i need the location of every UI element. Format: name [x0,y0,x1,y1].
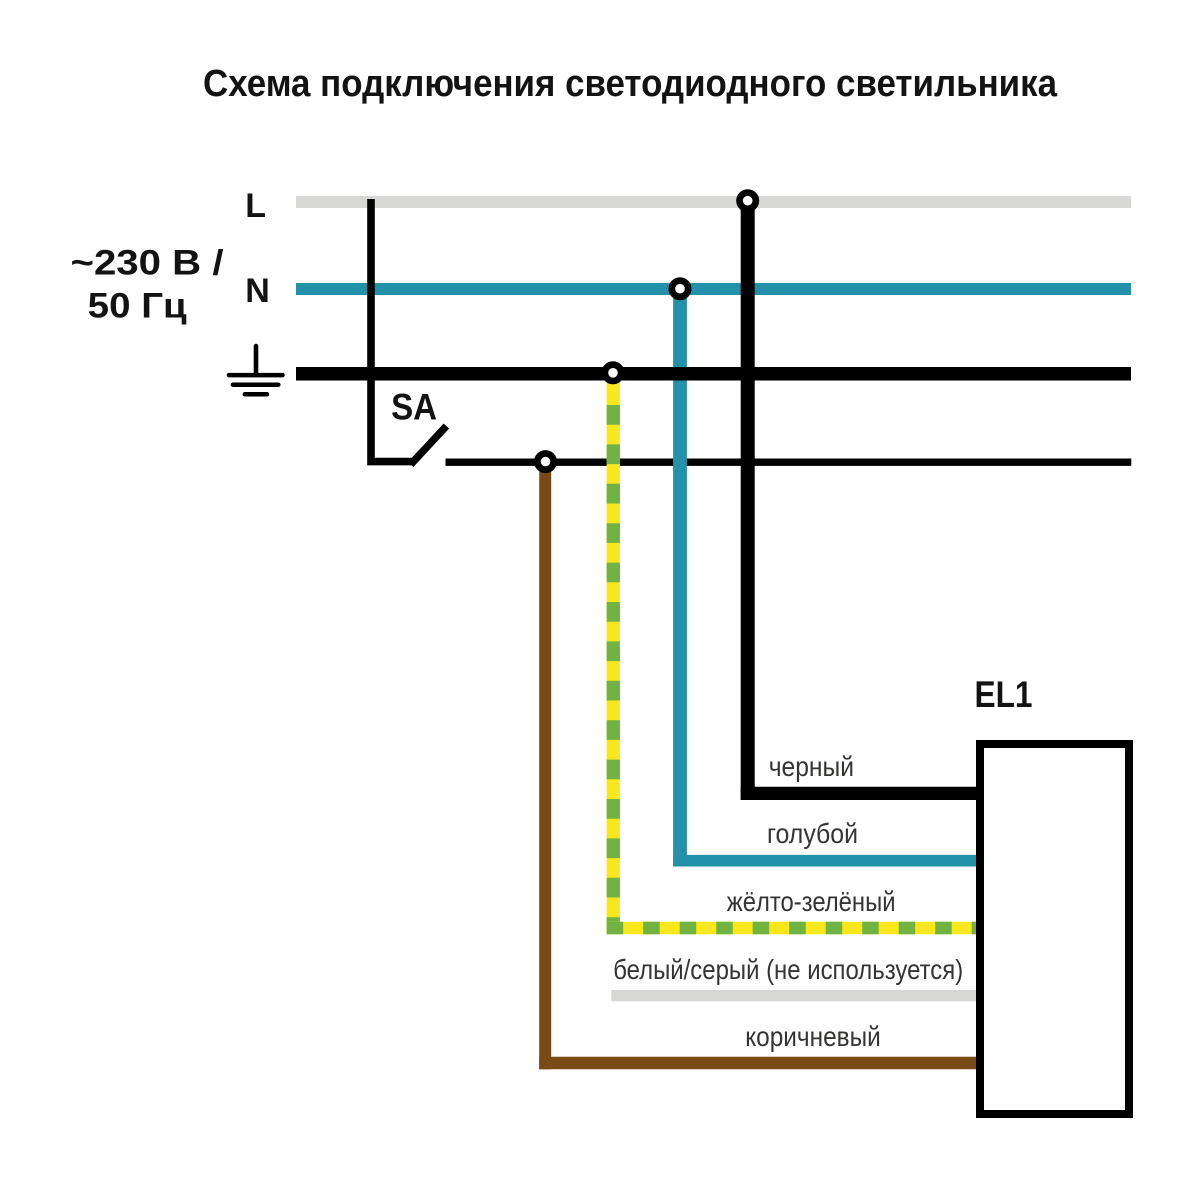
svg-text:коричневый: коричневый [745,1021,881,1052]
svg-text:жёлто-зелёный: жёлто-зелёный [727,886,896,917]
svg-text:N: N [245,272,270,310]
svg-text:EL1: EL1 [975,674,1033,715]
svg-text:~230 В /: ~230 В / [71,244,224,283]
svg-text:50 Гц: 50 Гц [88,286,188,325]
svg-text:белый/серый (не используется): белый/серый (не используется) [613,954,963,985]
svg-text:голубой: голубой [767,818,858,849]
svg-text:L: L [245,187,266,225]
svg-text:Схема подключения светодиодног: Схема подключения светодиодного светильн… [203,63,1058,105]
svg-text:черный: черный [769,751,854,782]
svg-text:SA: SA [391,386,437,427]
